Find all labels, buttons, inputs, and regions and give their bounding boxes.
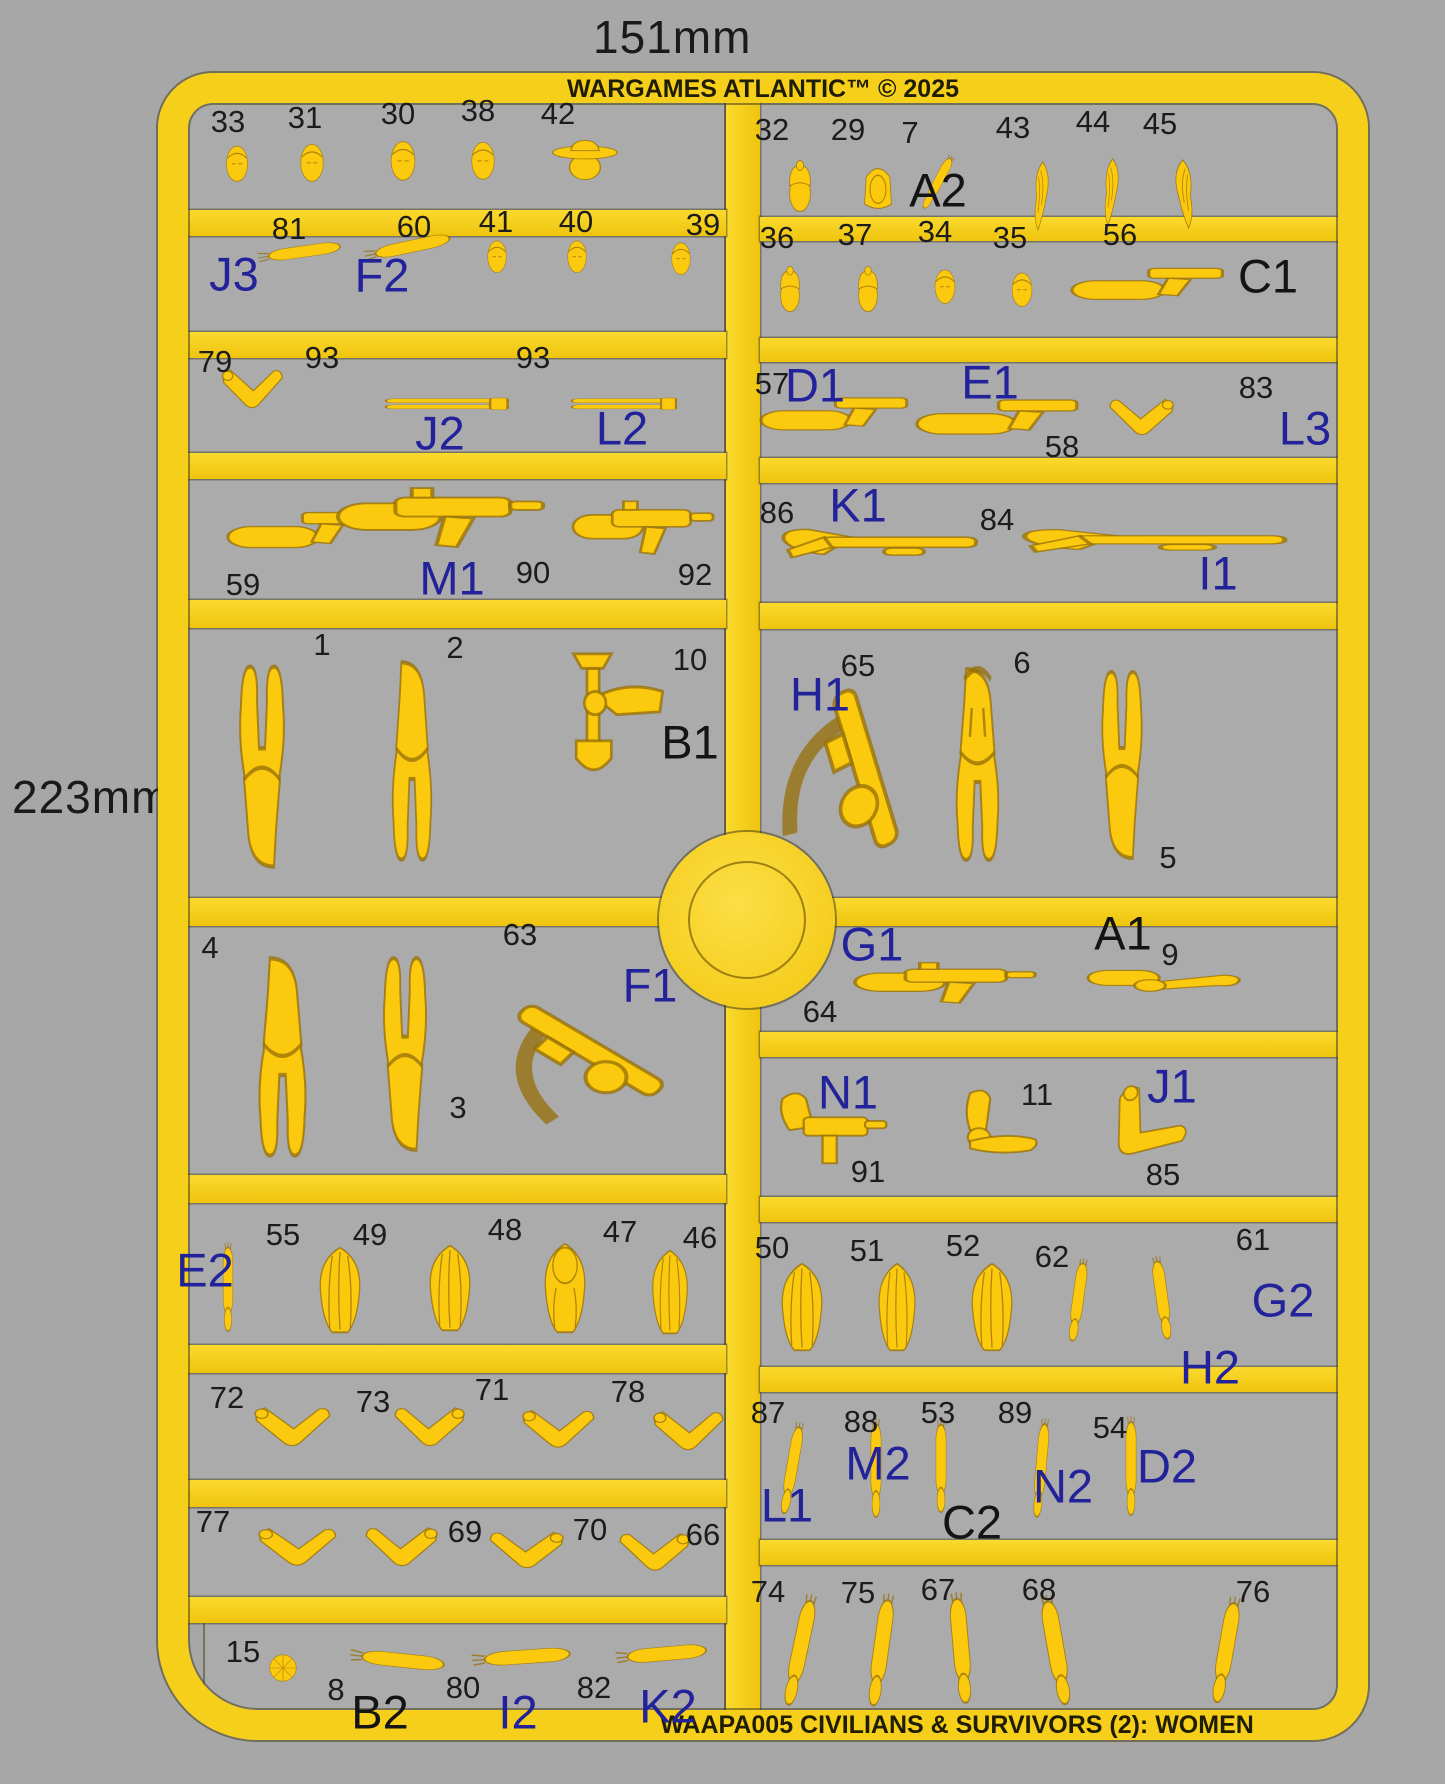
sprue-hub-inner-ring bbox=[688, 861, 806, 979]
part-56-pistolarm bbox=[1072, 251, 1232, 313]
part-number-47: 47 bbox=[603, 1214, 637, 1250]
part-number-35: 35 bbox=[993, 220, 1027, 256]
part-42-headhat bbox=[550, 135, 620, 181]
part-number-45: 45 bbox=[1143, 106, 1177, 142]
part-number-31: 31 bbox=[288, 100, 322, 136]
part-15-bun bbox=[268, 1653, 298, 1683]
part-40-head bbox=[563, 238, 591, 274]
group-code-K2: K2 bbox=[639, 1679, 697, 1734]
part-number-86: 86 bbox=[760, 495, 794, 531]
part-33-head bbox=[221, 143, 253, 183]
part-number-39: 39 bbox=[686, 207, 720, 243]
part-number-7: 7 bbox=[901, 115, 918, 151]
part-number-72: 72 bbox=[210, 1380, 244, 1416]
part-number-76: 76 bbox=[1236, 1574, 1270, 1610]
part-37-headbeanie bbox=[850, 265, 886, 313]
group-code-K1: K1 bbox=[829, 478, 887, 533]
part-number-68: 68 bbox=[1022, 1572, 1056, 1608]
part-number-60: 60 bbox=[397, 209, 431, 245]
group-code-J3: J3 bbox=[209, 247, 259, 302]
part-34-head bbox=[930, 267, 960, 305]
group-code-L2: L2 bbox=[596, 401, 648, 456]
part-number-62: 62 bbox=[1035, 1239, 1069, 1275]
part-number-93: 93 bbox=[516, 340, 550, 376]
part-number-6: 6 bbox=[1013, 645, 1030, 681]
group-code-F1: F1 bbox=[623, 958, 678, 1013]
part-70-armb bbox=[488, 1526, 566, 1580]
part-number-36: 36 bbox=[760, 220, 794, 256]
part-number-63: 63 bbox=[503, 917, 537, 953]
part-number-93: 93 bbox=[305, 340, 339, 376]
group-code-J2: J2 bbox=[415, 406, 465, 461]
part-number-1: 1 bbox=[313, 627, 330, 663]
part-number-89: 89 bbox=[998, 1395, 1032, 1431]
part-3-bodyinv bbox=[357, 950, 453, 1156]
part-number-61: 61 bbox=[1236, 1222, 1270, 1258]
group-code-E1: E1 bbox=[961, 355, 1019, 410]
part-47-haircap bbox=[533, 1241, 597, 1335]
part-number-44: 44 bbox=[1076, 104, 1110, 140]
part-number-3: 3 bbox=[449, 1090, 466, 1126]
part-number-87: 87 bbox=[751, 1395, 785, 1431]
part-number-37: 37 bbox=[838, 217, 872, 253]
part-31-head bbox=[295, 141, 329, 183]
part-4-body bbox=[230, 952, 335, 1164]
part-number-80: 80 bbox=[446, 1670, 480, 1706]
part-number-48: 48 bbox=[488, 1212, 522, 1248]
part-number-11: 11 bbox=[1021, 1077, 1053, 1113]
part-72-armb bbox=[252, 1401, 332, 1459]
part-41-head bbox=[483, 238, 511, 274]
part-number-75: 75 bbox=[841, 1575, 875, 1611]
part-49-hair bbox=[308, 1245, 372, 1335]
group-code-B2: B2 bbox=[351, 1685, 409, 1740]
part-39-head bbox=[667, 240, 695, 276]
brand-text: WARGAMES ATLANTIC™ © 2025 bbox=[158, 75, 1368, 104]
part-number-91: 91 bbox=[851, 1154, 885, 1190]
part-52-hair bbox=[960, 1261, 1024, 1353]
part-number-29: 29 bbox=[831, 112, 865, 148]
part-number-15: 15 bbox=[226, 1634, 260, 1670]
part-66-armb bbox=[618, 1527, 692, 1583]
part-71-armb bbox=[520, 1404, 596, 1460]
part-number-84: 84 bbox=[980, 502, 1014, 538]
width-dimension-label: 151mm bbox=[593, 10, 751, 64]
part-1-bodyinv bbox=[212, 658, 312, 873]
group-code-D1: D1 bbox=[785, 358, 845, 413]
part-45-pony bbox=[1165, 157, 1207, 231]
part-number-73: 73 bbox=[356, 1384, 390, 1420]
part-50-hair bbox=[770, 1261, 834, 1353]
part-10-shovelarm bbox=[533, 648, 668, 793]
part-number-5: 5 bbox=[1159, 840, 1176, 876]
part-number-43: 43 bbox=[996, 110, 1030, 146]
group-code-I2: I2 bbox=[498, 1685, 537, 1740]
group-code-A2: A2 bbox=[909, 163, 967, 218]
part-43-pony bbox=[1023, 159, 1057, 233]
part-number-66: 66 bbox=[686, 1517, 720, 1553]
group-code-A1: A1 bbox=[1094, 906, 1152, 961]
group-code-L1: L1 bbox=[761, 1478, 813, 1533]
part-number-59: 59 bbox=[226, 567, 260, 603]
group-code-I1: I1 bbox=[1198, 546, 1237, 601]
group-code-G1: G1 bbox=[841, 917, 904, 972]
part-6-bodyhoodie bbox=[930, 663, 1025, 868]
product-text: WAAPA005 CIVILIANS & SURVIVORS (2): WOME… bbox=[607, 1711, 1307, 1740]
part-number-65: 65 bbox=[841, 648, 875, 684]
part-5-bodyinv bbox=[1077, 664, 1167, 864]
part-number-64: 64 bbox=[803, 994, 837, 1030]
part-number-33: 33 bbox=[211, 104, 245, 140]
part-number-30: 30 bbox=[381, 96, 415, 132]
part-number-34: 34 bbox=[918, 214, 952, 250]
part-30-head bbox=[385, 138, 421, 182]
part-number-90: 90 bbox=[516, 555, 550, 591]
group-code-N1: N1 bbox=[818, 1065, 878, 1120]
part-number-9: 9 bbox=[1161, 937, 1178, 973]
part-number-79: 79 bbox=[198, 344, 232, 380]
group-code-H2: H2 bbox=[1180, 1340, 1240, 1395]
group-code-J1: J1 bbox=[1147, 1059, 1197, 1114]
part-number-56: 56 bbox=[1103, 217, 1137, 253]
group-code-N2: N2 bbox=[1033, 1459, 1093, 1514]
part-number-2: 2 bbox=[446, 630, 463, 666]
part-number-78: 78 bbox=[611, 1374, 645, 1410]
group-code-G2: G2 bbox=[1252, 1273, 1315, 1328]
part-number-85: 85 bbox=[1146, 1157, 1180, 1193]
part-number-53: 53 bbox=[921, 1395, 955, 1431]
group-code-C1: C1 bbox=[1238, 249, 1298, 304]
part-51-hair bbox=[868, 1261, 926, 1353]
part-number-4: 4 bbox=[201, 930, 218, 966]
part-number-10: 10 bbox=[673, 642, 707, 678]
part-29-headhood bbox=[857, 158, 899, 214]
part-number-81: 81 bbox=[272, 211, 306, 247]
part-number-67: 67 bbox=[921, 1572, 955, 1608]
part-84-shotgunarm bbox=[1020, 511, 1290, 573]
group-code-F2: F2 bbox=[355, 248, 410, 303]
part-number-49: 49 bbox=[353, 1217, 387, 1253]
group-code-L3: L3 bbox=[1279, 401, 1331, 456]
part-number-77: 77 bbox=[196, 1504, 230, 1540]
part-69-armb bbox=[364, 1521, 440, 1579]
part-48-hair bbox=[418, 1243, 482, 1333]
part-83-armb bbox=[1108, 393, 1176, 447]
part-number-42: 42 bbox=[541, 96, 575, 132]
part-number-41: 41 bbox=[479, 204, 513, 240]
part-number-74: 74 bbox=[751, 1574, 785, 1610]
part-46-hair bbox=[642, 1248, 698, 1336]
part-number-58: 58 bbox=[1045, 429, 1079, 465]
part-number-8: 8 bbox=[327, 1672, 344, 1708]
group-code-M2: M2 bbox=[845, 1436, 910, 1491]
part-number-92: 92 bbox=[678, 557, 712, 593]
height-dimension-label: 223mm bbox=[12, 770, 170, 824]
part-77-armb bbox=[256, 1522, 338, 1578]
part-number-40: 40 bbox=[559, 204, 593, 240]
part-73-armb bbox=[393, 1401, 467, 1459]
part-36-headbeanie bbox=[772, 265, 808, 313]
part-number-55: 55 bbox=[266, 1217, 300, 1253]
part-35-head bbox=[1007, 270, 1037, 308]
part-number-38: 38 bbox=[461, 93, 495, 129]
part-78-armb bbox=[651, 1405, 725, 1463]
part-32-headbeanie bbox=[780, 159, 820, 213]
group-code-D2: D2 bbox=[1137, 1439, 1197, 1494]
part-number-69: 69 bbox=[448, 1514, 482, 1550]
part-number-50: 50 bbox=[755, 1230, 789, 1266]
sprue-photo: 151mm 223mm WARGAMES ATLANTIC™ © 2025 WA… bbox=[0, 0, 1445, 1784]
group-code-M1: M1 bbox=[419, 551, 484, 606]
part-number-70: 70 bbox=[573, 1512, 607, 1548]
part-number-54: 54 bbox=[1093, 1410, 1127, 1446]
part-80-arms bbox=[469, 1636, 575, 1677]
group-code-B1: B1 bbox=[661, 715, 719, 770]
part-number-46: 46 bbox=[683, 1220, 717, 1256]
part-number-82: 82 bbox=[577, 1670, 611, 1706]
group-code-C2: C2 bbox=[942, 1495, 1002, 1550]
part-2-body bbox=[368, 656, 456, 868]
part-number-83: 83 bbox=[1239, 370, 1273, 406]
part-38-head bbox=[466, 139, 500, 181]
part-number-32: 32 bbox=[755, 112, 789, 148]
group-code-E2: E2 bbox=[176, 1243, 234, 1298]
part-number-51: 51 bbox=[850, 1233, 884, 1269]
part-number-52: 52 bbox=[946, 1228, 980, 1264]
part-number-71: 71 bbox=[475, 1372, 509, 1408]
